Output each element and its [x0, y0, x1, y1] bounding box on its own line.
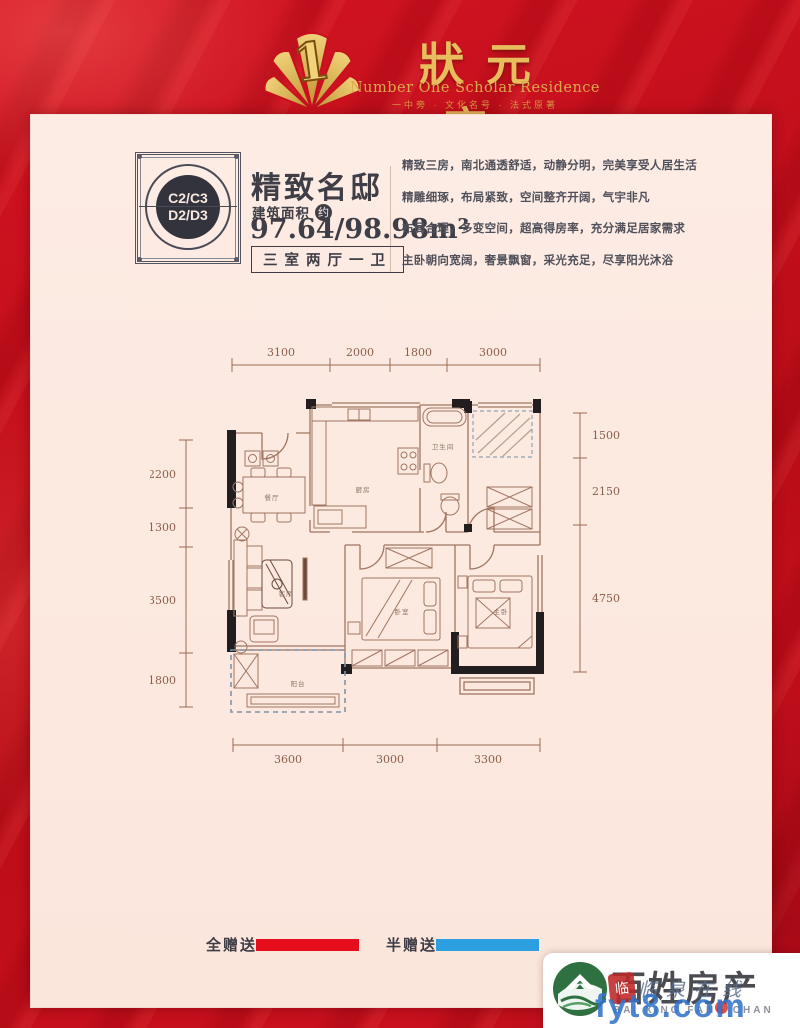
legend-full-gift-label: 全赠送	[206, 934, 257, 955]
stamp-unit-codes: C2/C3 D2/D3	[156, 175, 220, 239]
dimension-lines	[179, 358, 587, 752]
dimension-labels: 3100 2000 1800 3000 2200 1300 3500 1800 …	[150, 346, 620, 766]
brand-name-english: Number One Scholar Residence	[340, 80, 610, 96]
dim-top: 3100	[267, 346, 295, 359]
stamp-divider	[139, 206, 237, 207]
furniture	[233, 407, 532, 707]
legend-half-gift-label: 半赠送	[386, 934, 437, 955]
description-block: 精致三房，南北通透舒适，动静分明，完美享受人居生活 精雕细琢，布局紧致，空间整齐…	[402, 157, 684, 283]
room-label-bedroom: 卧室	[395, 607, 410, 616]
room-label-balcony: 阳台	[291, 679, 306, 688]
stamp-line-top: C2/C3	[156, 190, 220, 207]
description-line: 精雕细琢，布局紧致，空间整齐开阔，气宇非凡	[402, 189, 684, 205]
balcony-outline	[231, 650, 345, 712]
dim-right: 1500	[592, 429, 620, 442]
brand-tagline: 一中旁 · 文化名号 · 法式原著	[340, 98, 610, 111]
dim-top: 2000	[346, 346, 374, 359]
dim-bottom: 3000	[376, 753, 404, 766]
room-label-bathroom: 卫生间	[432, 442, 455, 451]
description-line: 精致三房，南北通透舒适，动静分明，完美享受人居生活	[402, 157, 684, 173]
dim-top: 1800	[404, 346, 432, 359]
poster: 1 狀元府 Number One Scholar Residence 一中旁 ·…	[0, 0, 800, 1028]
stamp-ring: C2/C3 D2/D3	[145, 164, 231, 250]
dim-right: 2150	[592, 485, 620, 498]
dim-left: 1300	[150, 521, 176, 534]
description-line: 布局合理，多变空间，超高得房率，充分满足居家需求	[402, 220, 684, 236]
stamp-line-bottom: D2/D3	[156, 207, 220, 224]
room-label-living: 客厅	[279, 589, 294, 598]
legend-full-gift-bar	[256, 939, 359, 951]
room-label-dining: 餐厅	[265, 493, 280, 502]
unit-layout: 三室两厅一卫	[251, 246, 404, 273]
room-label-master: 主卧	[494, 607, 509, 616]
dim-left: 2200	[150, 468, 176, 481]
bay-window-gift-area	[473, 411, 532, 457]
dim-bottom: 3300	[474, 753, 502, 766]
dim-left: 3500	[150, 594, 176, 607]
site-url: fyt8.com	[595, 987, 747, 1025]
unit-title: 精致名邸	[251, 163, 383, 207]
floor-plan: 3100 2000 1800 3000 2200 1300 3500 1800 …	[150, 330, 620, 800]
walls-thick	[227, 399, 544, 674]
room-label-kitchen: 厨房	[356, 485, 371, 494]
unit-type-stamp: C2/C3 D2/D3	[135, 152, 241, 264]
dim-left: 1800	[150, 674, 176, 687]
agency-watermark: 百姓房产 BAI XING FANG CHAN 临 临泉在线 fyt8.com	[543, 953, 800, 1028]
legend-half-gift-bar	[436, 939, 539, 951]
dim-right: 4750	[592, 592, 620, 605]
description-line: 主卧朝向宽阔，奢景飘窗，采光充足，尽享阳光沐浴	[402, 252, 684, 268]
dim-top: 3000	[479, 346, 507, 359]
dim-bottom: 3600	[274, 753, 302, 766]
